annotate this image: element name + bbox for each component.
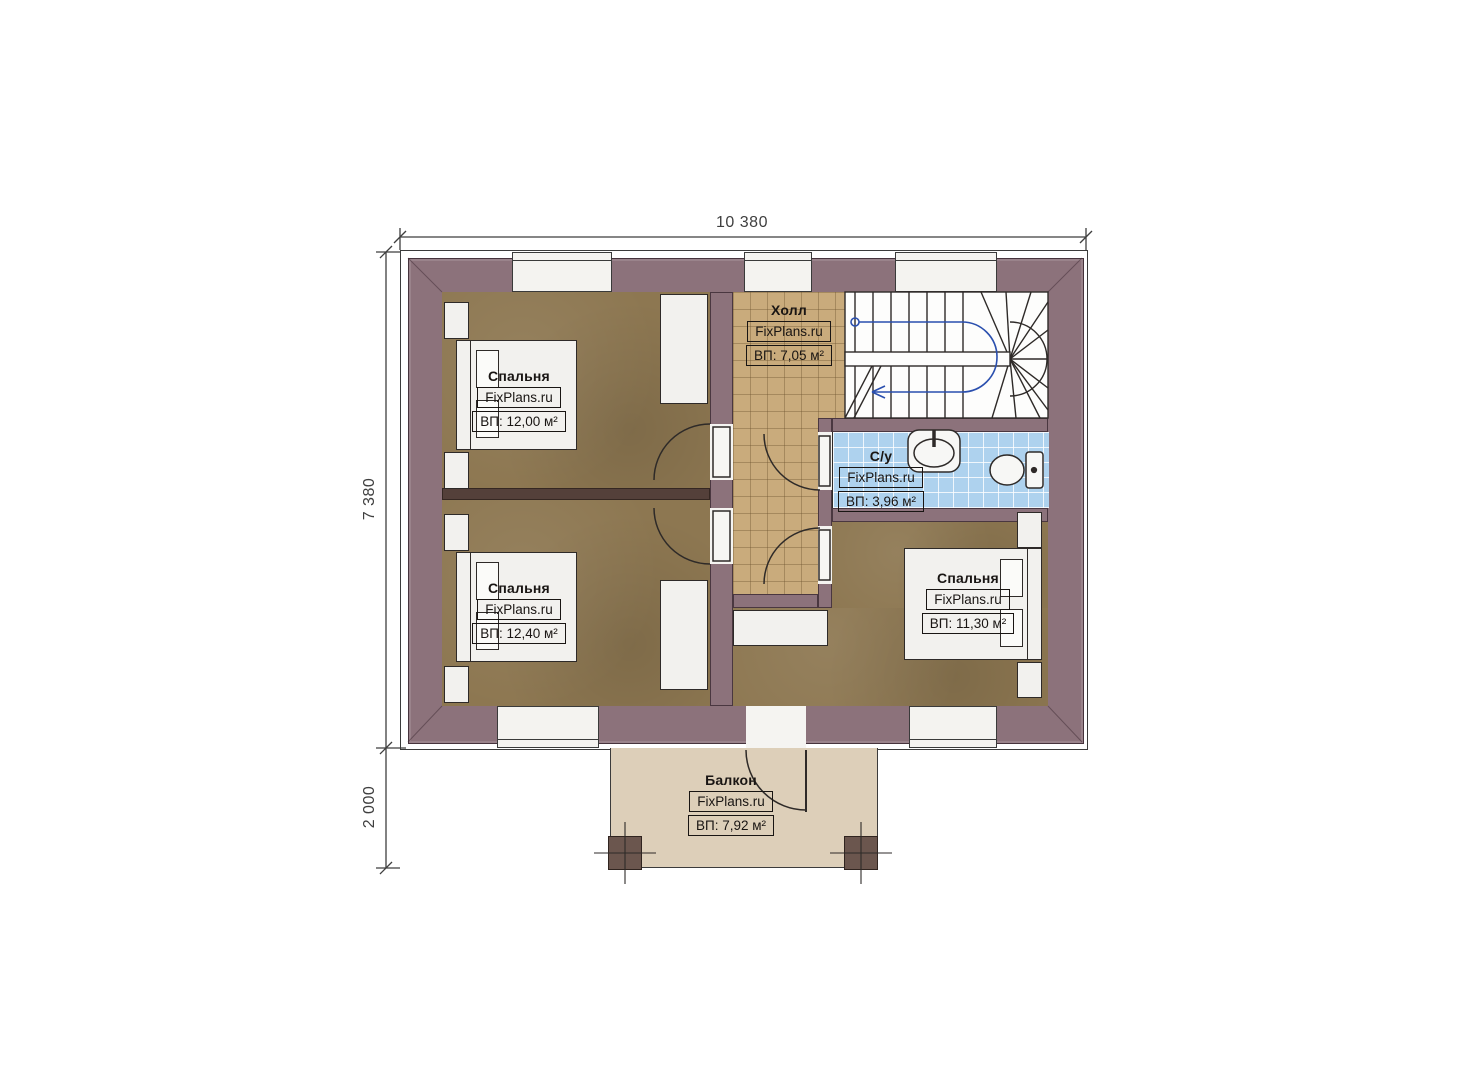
room-name: С/у — [870, 448, 892, 464]
nightstand — [444, 302, 469, 339]
nightstand — [444, 666, 469, 703]
dimension-top: 10 380 — [702, 214, 782, 232]
window-top-2 — [744, 252, 812, 292]
hall-bottom-wall — [733, 594, 818, 608]
door-opening-bedroom-right — [818, 526, 832, 584]
room-brand: FixPlans.ru — [689, 791, 773, 812]
nightstand — [1017, 512, 1042, 548]
nightstand — [444, 452, 469, 489]
room-brand: FixPlans.ru — [477, 387, 561, 408]
room-area: ВП: 3,96 м² — [838, 491, 924, 512]
door-opening-bedroom-top-left — [710, 424, 733, 480]
balcony-door-opening — [746, 706, 806, 750]
window-top-3 — [895, 252, 997, 292]
room-area: ВП: 7,92 м² — [688, 815, 774, 836]
dimension-left-balcony: 2 000 — [361, 767, 379, 847]
room-label-bedroom-bottom-left: Спальня FixPlans.ru ВП: 12,40 м² — [449, 580, 589, 644]
room-area: ВП: 7,05 м² — [746, 345, 832, 366]
room-brand: FixPlans.ru — [747, 321, 831, 342]
wardrobe-bedroom-top-left — [660, 294, 708, 404]
room-area: ВП: 11,30 м² — [922, 613, 1015, 634]
window-bottom-1 — [497, 706, 599, 748]
balcony-post-left — [608, 836, 642, 870]
window-bottom-2 — [909, 706, 997, 748]
room-area: ВП: 12,00 м² — [472, 411, 566, 432]
nightstand — [444, 514, 469, 551]
room-label-bathroom: С/у FixPlans.ru ВП: 3,96 м² — [822, 448, 940, 512]
room-label-bedroom-right: Спальня FixPlans.ru ВП: 11,30 м² — [898, 570, 1038, 634]
room-area: ВП: 12,40 м² — [472, 623, 566, 644]
wardrobe-bedroom-bottom-left — [660, 580, 708, 690]
dresser-bedroom-right — [733, 610, 828, 646]
room-brand: FixPlans.ru — [839, 467, 923, 488]
room-name: Спальня — [488, 580, 550, 596]
bathroom-top-wall — [832, 418, 1048, 432]
partition-wall-between-left-bedrooms — [442, 488, 710, 500]
room-brand: FixPlans.ru — [477, 599, 561, 620]
room-brand: FixPlans.ru — [926, 589, 1010, 610]
room-name: Холл — [771, 302, 807, 318]
room-label-hall: Холл FixPlans.ru ВП: 7,05 м² — [730, 302, 848, 366]
floor-plan-canvas: 10 380 7 380 2 000 Спальня FixPlans.ru В… — [0, 0, 1473, 1080]
window-top-1 — [512, 252, 612, 292]
room-label-balcony: Балкон FixPlans.ru ВП: 7,92 м² — [666, 772, 796, 836]
room-name: Балкон — [705, 772, 757, 788]
nightstand — [1017, 662, 1042, 698]
stairwell — [845, 292, 1048, 418]
room-name: Спальня — [488, 368, 550, 384]
room-name: Спальня — [937, 570, 999, 586]
door-opening-bedroom-bottom-left — [710, 508, 733, 564]
dimension-left-main: 7 380 — [361, 459, 379, 539]
balcony-post-right — [844, 836, 878, 870]
room-label-bedroom-top-left: Спальня FixPlans.ru ВП: 12,00 м² — [449, 368, 589, 432]
